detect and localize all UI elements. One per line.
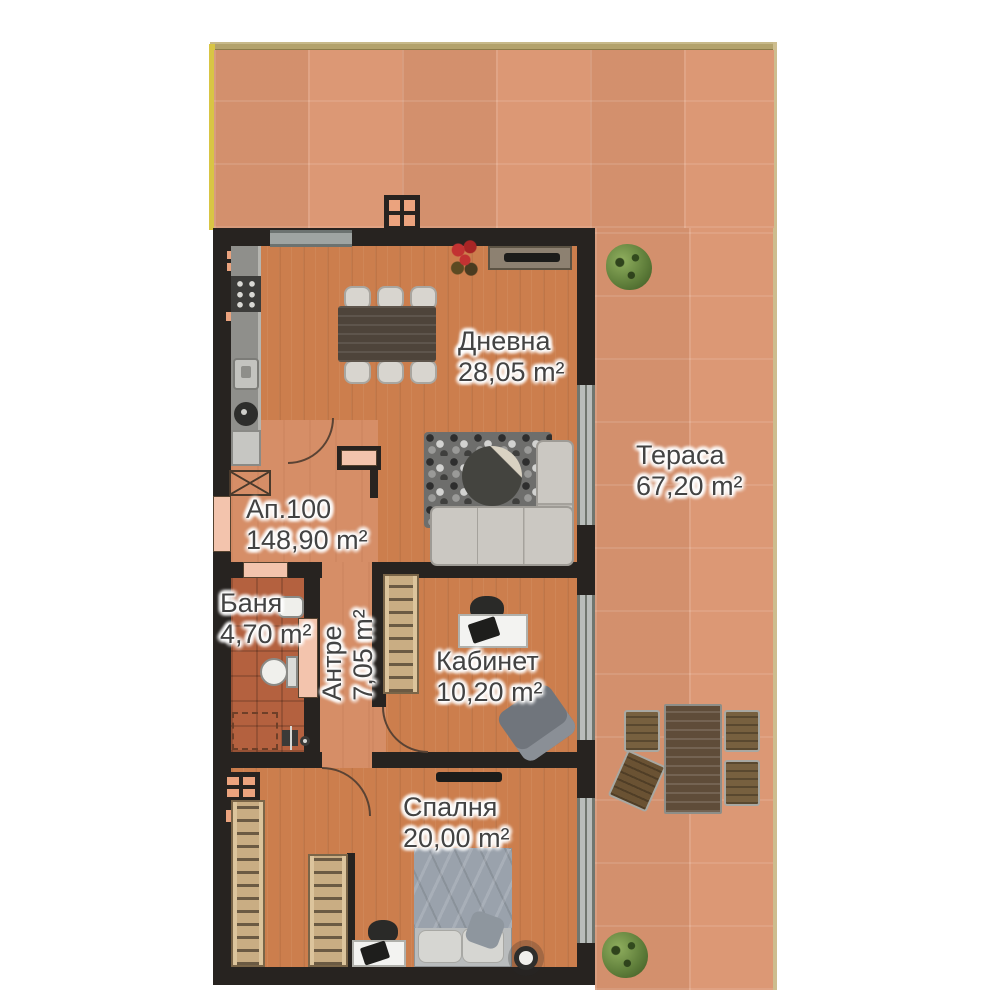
room-label-banya: Баня 4,70 m² (220, 588, 312, 650)
room-name: Спалня (403, 792, 510, 823)
office-door-arc (383, 707, 428, 752)
stove-icon (231, 276, 261, 312)
dining-chair (344, 360, 371, 384)
dining-chair (377, 360, 404, 384)
room-area: 67,20 m² (636, 471, 743, 502)
kitchen-sink-icon (233, 358, 259, 390)
apartment-number: Ап.100 (246, 494, 368, 525)
terrace (595, 228, 773, 990)
window-living-right (577, 385, 595, 525)
wall-stub (370, 470, 378, 498)
room-name: Кабинет (436, 646, 543, 677)
lamp-icon (514, 946, 538, 970)
wardrobe (231, 800, 265, 967)
floor-plan: Дневна 28,05 m² Тераса 67,20 m² Ап.100 1… (0, 0, 1000, 1000)
appliance-slot-icon (229, 470, 271, 496)
room-area: 7,05 m² (348, 609, 379, 701)
bathroom-entry-opening (243, 562, 288, 578)
room-label-kabinet: Кабинет 10,20 m² (436, 646, 543, 708)
bedroom-door-arc (322, 768, 370, 816)
wall-segment (231, 752, 322, 768)
wall-segment (231, 562, 243, 578)
room-label-terasa: Тераса 67,20 m² (636, 440, 743, 502)
hall-niche-opening (341, 450, 377, 466)
duvet (414, 848, 512, 928)
terrace-table (664, 704, 722, 814)
corner-window-icon (222, 772, 260, 802)
washer-tap-icon (282, 730, 298, 746)
apartment-label: Ап.100 148,90 m² (246, 494, 368, 556)
toilet-icon (260, 658, 288, 686)
fridge-icon (231, 430, 261, 466)
pillow (418, 930, 462, 963)
terrace-chair (624, 710, 660, 752)
room-area: 10,20 m² (436, 677, 543, 708)
room-name: Баня (220, 588, 312, 619)
wall-segment (372, 752, 577, 768)
entrance-door (213, 496, 231, 552)
room-name: Тераса (636, 440, 743, 471)
bush-icon (606, 244, 652, 290)
room-name: Антре (317, 609, 348, 701)
pillar-window-icon (384, 195, 420, 231)
window-office-right (577, 595, 595, 740)
room-area: 20,00 m² (403, 823, 510, 854)
kitchen-door-arc (287, 417, 333, 463)
terrace-chair (724, 710, 760, 752)
coffee-table (462, 446, 522, 506)
bush-icon (602, 932, 648, 978)
tv-icon (504, 253, 560, 262)
dining-chair (410, 360, 437, 384)
terrace (214, 50, 774, 228)
dining-table (338, 306, 436, 362)
drain-icon (300, 736, 310, 746)
wardrobe (308, 854, 348, 967)
room-label-antre: Антре 7,05 m² (317, 609, 379, 701)
window-top (270, 230, 352, 247)
shower-icon (232, 712, 278, 750)
apartment-area: 148,90 m² (246, 525, 368, 556)
room-label-dnevna: Дневна 28,05 m² (458, 326, 565, 388)
terrace-chair (724, 760, 760, 806)
bedroom-tv-icon (436, 772, 502, 782)
window-bedroom-right (577, 798, 595, 943)
room-area: 4,70 m² (220, 619, 312, 650)
room-area: 28,05 m² (458, 357, 565, 388)
room-label-spalnya: Спалня 20,00 m² (403, 792, 510, 854)
wardrobe (383, 574, 419, 694)
toilet-tank-icon (286, 656, 298, 688)
room-name: Дневна (458, 326, 565, 357)
sofa-seat-section (430, 506, 574, 566)
flower-plant-icon (448, 238, 482, 278)
kettle-icon (234, 402, 258, 426)
